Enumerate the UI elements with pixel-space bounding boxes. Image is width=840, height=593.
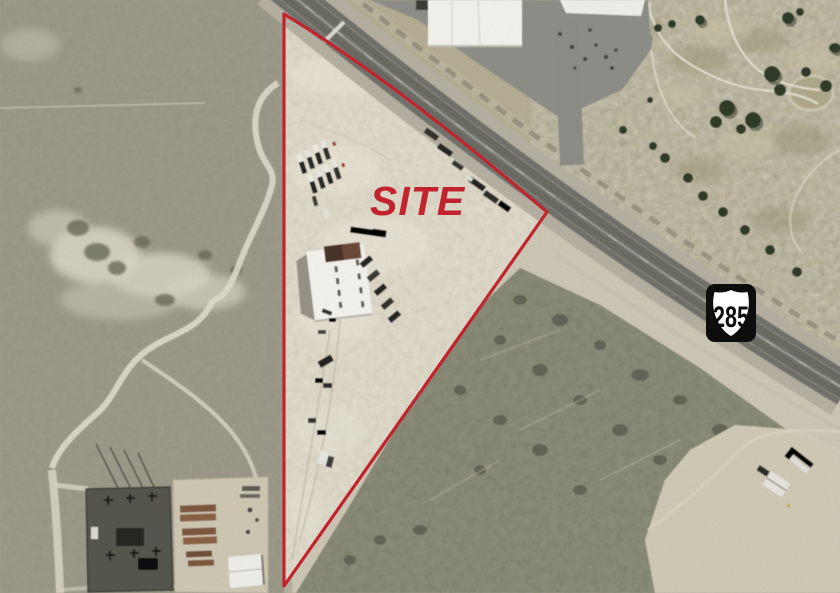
- route-number: 285: [713, 301, 749, 334]
- site-label: SITE: [370, 178, 466, 224]
- aerial-photo: SITE 285: [0, 0, 840, 593]
- aerial-scene: SITE 285: [0, 0, 840, 593]
- us-route-shield: 285: [706, 284, 756, 342]
